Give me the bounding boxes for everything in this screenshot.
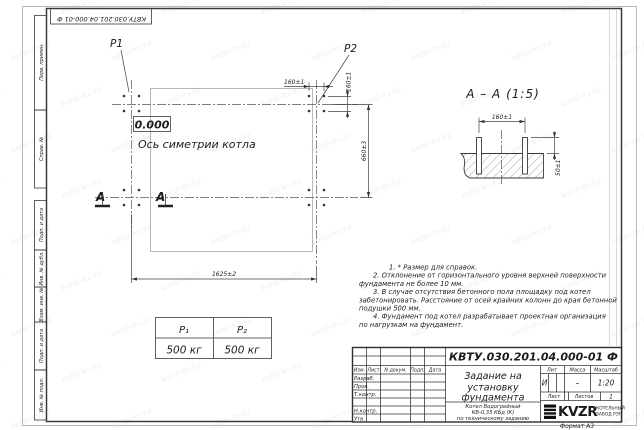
p2-leader (318, 55, 349, 103)
strip-label: Подп. и дата (39, 208, 45, 242)
sheet-label: Лист (547, 394, 562, 400)
p1-leader (121, 50, 129, 92)
col-header-ndocum: N докум. (384, 368, 406, 374)
row-razrab: Разраб. (354, 376, 374, 382)
strip-label: Перв. примен. (39, 43, 45, 81)
strip-label: Инв. № дубл. (39, 251, 45, 285)
strip-label: Инв. № подл. (39, 378, 45, 413)
mass-label: Масса (570, 368, 586, 374)
load-value: 500 кг (166, 345, 202, 357)
doc-number: КВТУ.030.201.04.000-01 Ф (449, 351, 618, 364)
title-block: КВТУ.030.201.04.000-01 Ф Изм. Лист N док… (353, 348, 625, 430)
load-value: 500 кг (224, 345, 260, 357)
load-table: P₁ P₂ 500 кг 500 кг (156, 318, 272, 359)
strip-label: Справ. № (39, 137, 45, 161)
p2-label: P2 (344, 43, 357, 55)
mass-value: – (576, 379, 580, 388)
foundation-block (461, 154, 544, 179)
p1-label: P1 (110, 38, 123, 50)
strip-label: Взам. инв. № (39, 288, 45, 322)
note-line: подушки 500 мм. (359, 305, 421, 313)
lit-value: И (542, 379, 548, 388)
product-line: по техническому заданию (457, 416, 530, 422)
anchor-bolt (477, 138, 482, 175)
drawing-canvas: КВТУ.030.201.04.000-01 Ф Перв. примен. С… (0, 0, 644, 430)
col-header-podp: Подп. (410, 368, 425, 374)
dim-160-side: 160±1 (328, 72, 353, 118)
col-header-data: Дата (428, 368, 441, 374)
section-letter: А (155, 190, 165, 204)
symmetry-axis-label: Ось симетрии котла (138, 138, 256, 151)
note-line: забетонировать. Расстояние от осей крайн… (359, 296, 617, 304)
dim-text: 50±1 (555, 160, 562, 176)
section-cut-marks: А А (95, 190, 173, 206)
sheets-label: Листов (574, 394, 594, 400)
left-margin-strips: Перв. примен. Справ. № Подп. и дата Инв.… (35, 16, 47, 421)
load-col-header: P₁ (179, 325, 189, 336)
elevation-value: 0.000 (135, 119, 170, 132)
drawing-sheet: kotel-kv.kzkotel-kv.kzkotel-kv.kzkotel-k… (0, 0, 644, 430)
col-header-izm: Изм. (354, 368, 365, 374)
lit-label: Лит (546, 368, 558, 374)
strip-label: Подп. и дата (39, 329, 45, 363)
note-line: 1. * Размер для справок. (389, 264, 477, 272)
technical-notes: 1. * Размер для справок. 2. Отклонение о… (359, 264, 617, 329)
row-prov: Пров. (354, 384, 369, 390)
row-tkontr: Т.контр. (354, 392, 376, 398)
row-utv: Утв. (354, 416, 365, 422)
section-title: А – А (1:5) (465, 87, 540, 101)
dim-160-top: 160±1 (284, 79, 333, 91)
col-header-list: Лист (366, 368, 379, 374)
section-letter: А (95, 190, 105, 204)
note-line: фундамента не более 10 мм. (359, 280, 463, 288)
dim-text: 1625±2 (212, 271, 236, 278)
doc-title-line: Задание на (464, 371, 522, 382)
plan-view: P1 P2 160±1 160±1 660±3 (95, 38, 373, 283)
center-axes (95, 80, 358, 264)
dim-160-section: 160±1 (479, 114, 525, 133)
logo-tagline: КОТЕЛЬНЫЙ (596, 405, 625, 412)
scale-label: Масштаб (594, 368, 618, 374)
row-nkontr: Н.контр. (354, 408, 377, 414)
logo-text: KVZR (558, 404, 598, 420)
dim-text: 160±1 (346, 72, 353, 92)
dim-text: 660±3 (361, 141, 368, 161)
section-view: А – А (1:5) 160±1 50±1 (461, 87, 562, 184)
top-stamp-doc-number: КВТУ.030.201.04.000-01 Ф (57, 15, 146, 23)
doc-title-line: фундамента (462, 393, 525, 404)
note-line: 3. В случае отсутствия бетонного пола пл… (373, 288, 591, 296)
logo-tagline: ЗАВОД РЭП (596, 412, 622, 418)
dim-text: 160±1 (492, 114, 512, 121)
dim-text: 160±1 (284, 79, 304, 86)
boiler-outline (151, 89, 313, 252)
note-line: 2. Отклонение от горизонтального уровня … (373, 272, 607, 280)
scale-value: 1:20 (598, 379, 615, 388)
note-line: 4. Фундамент под котел разрабатывает про… (373, 313, 606, 321)
anchor-bolt (523, 138, 528, 175)
note-line: по нагрузкам на фундамент. (359, 321, 463, 329)
dim-1625: 1625±2 (132, 214, 317, 283)
sheets-value: 1 (609, 394, 613, 401)
load-col-header: P₂ (237, 325, 247, 336)
format-note: Формат А3 (560, 423, 594, 430)
dim-660: 660±3 (331, 105, 373, 198)
